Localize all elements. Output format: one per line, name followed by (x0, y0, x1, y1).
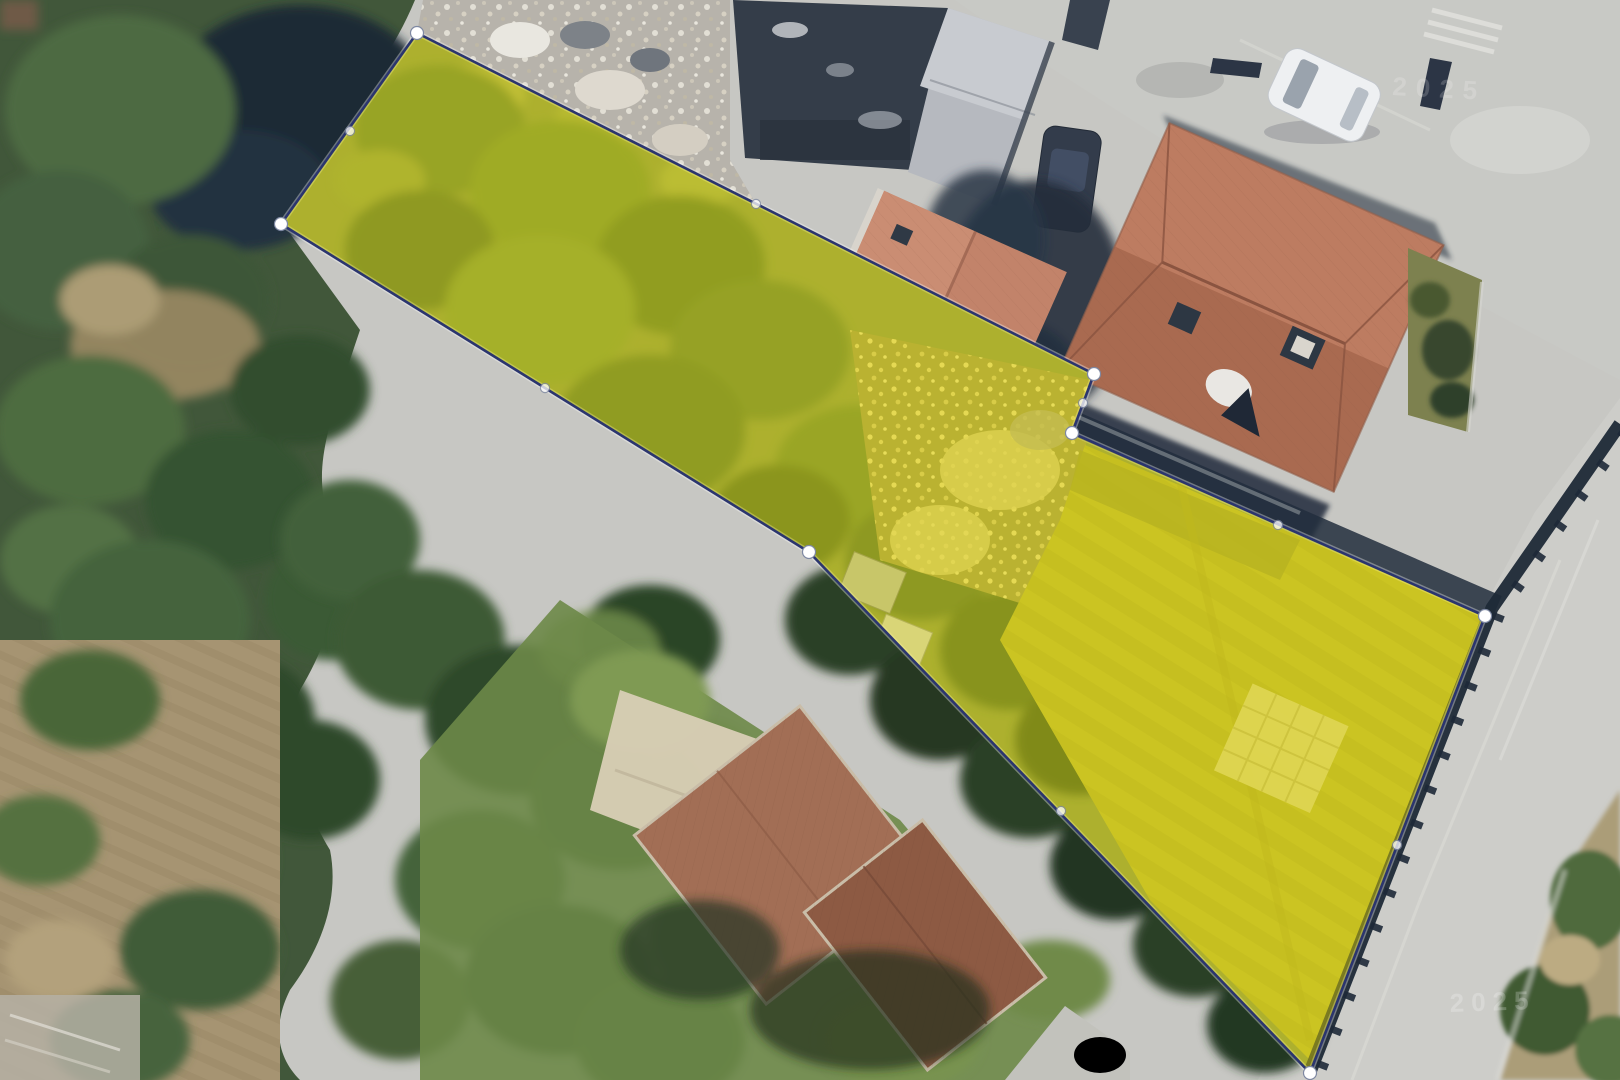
parcel-midpoint-handle[interactable] (345, 126, 354, 135)
parcel-vertex-handle[interactable] (803, 546, 816, 559)
parcel-midpoint-handle[interactable] (1056, 806, 1065, 815)
parcel-vertex-handle[interactable] (1066, 427, 1079, 440)
parcel-midpoint-handle[interactable] (540, 383, 549, 392)
parcel-midpoint-handle[interactable] (1392, 840, 1401, 849)
satellite-map-view: 2025 2025 (0, 0, 1620, 1080)
parcel-vertex-handle[interactable] (1088, 368, 1101, 381)
parcel-vertex-handle[interactable] (1304, 1067, 1317, 1080)
watermark-bottom-right: 2025 (1449, 985, 1536, 1018)
garden-bottom-left (0, 640, 280, 1080)
watermark-top-right: 2025 (1392, 71, 1487, 106)
parcel-vertex-handle[interactable] (275, 218, 288, 231)
parcel-midpoint-handle[interactable] (1273, 520, 1282, 529)
hedge-strip-right-of-house (1408, 248, 1482, 432)
parcel-midpoint-handle[interactable] (751, 199, 760, 208)
scene-svg: 2025 2025 (0, 0, 1620, 1080)
parcel-midpoint-handle[interactable] (1078, 398, 1087, 407)
parcel-vertex-handle[interactable] (411, 27, 424, 40)
parcel-vertex-handle[interactable] (1479, 610, 1492, 623)
